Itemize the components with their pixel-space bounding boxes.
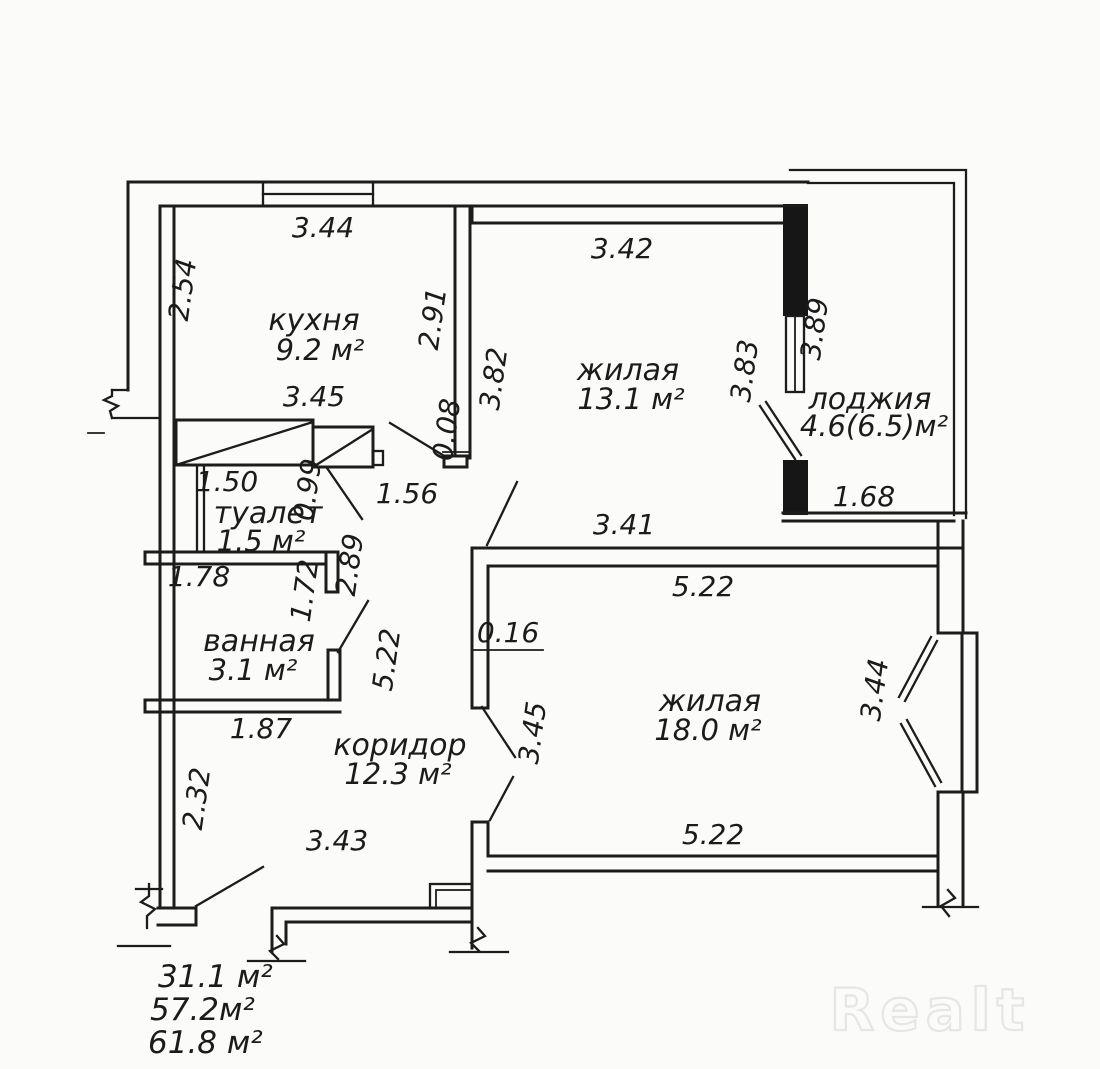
dim-bath-inner: 1.72 (284, 558, 325, 624)
labels-layer: кухня 9.2 м² жилая 13.1 м² лоджия 4.6(6.… (148, 211, 1030, 1061)
totals-block: 31.1 м² 57.2м² 61.8 м² (148, 959, 273, 1061)
kitchen-window (263, 182, 373, 206)
dim-toilet-width: 1.50 (196, 465, 258, 498)
dim-corridor-depth: 5.22 (366, 627, 407, 693)
dim-living2-bottom: 5.22 (682, 818, 744, 851)
room-loggia-area: 4.6(6.5)м² (800, 409, 949, 443)
dim-living1-top: 3.42 (591, 232, 653, 265)
floor-plan-canvas: кухня 9.2 м² жилая 13.1 м² лоджия 4.6(6.… (0, 0, 1100, 1069)
dim-hall-gap: 3.41 (593, 508, 655, 541)
room-bath-area: 3.1 м² (209, 653, 298, 687)
dim-kitchen-left: 2.54 (162, 257, 203, 323)
room-living2-area: 18.0 м² (654, 713, 762, 747)
total-living-area: 31.1 м² (158, 959, 273, 995)
dim-kitchen-top: 3.44 (292, 211, 354, 244)
dim-niche: 1.56 (376, 477, 438, 510)
dim-kitchen-right: 2.91 (412, 286, 453, 352)
dim-corridor-left: 2.32 (176, 766, 217, 832)
room-living1-area: 13.1 м² (577, 382, 685, 416)
dim-bay: 3.44 (854, 657, 895, 723)
dim-bath-bottom: 1.87 (230, 712, 293, 745)
room-kitchen-area: 9.2 м² (276, 333, 365, 367)
total-apartment-area: 57.2м² (150, 992, 255, 1028)
dim-partition: 0.16 (477, 616, 539, 649)
balcony-door-leaf (760, 402, 801, 459)
floor-plan-page: кухня 9.2 м² жилая 13.1 м² лоджия 4.6(6.… (0, 0, 1100, 1069)
realt-watermark: Realt (830, 976, 1031, 1044)
dim-living2-left: 3.45 (512, 700, 553, 766)
room-toilet-area: 1.5 м² (217, 524, 306, 558)
dim-toilet-depth: 2.89 (329, 532, 370, 598)
dim-living1-left: 3.82 (473, 346, 514, 412)
wall-loggia-lower (783, 460, 808, 515)
dim-living1-right: 3.83 (724, 338, 765, 404)
dim-kitchen-bottom: 3.45 (283, 380, 345, 413)
dim-bath-top: 1.78 (168, 560, 230, 593)
room-corridor-area: 12.3 м² (344, 757, 452, 791)
dim-loggia-bottom: 1.68 (833, 480, 895, 513)
cupboards (176, 420, 383, 467)
total-area: 61.8 м² (148, 1025, 263, 1061)
dim-living2-top: 5.22 (672, 570, 734, 603)
dim-corridor-bottom: 3.43 (306, 824, 368, 857)
